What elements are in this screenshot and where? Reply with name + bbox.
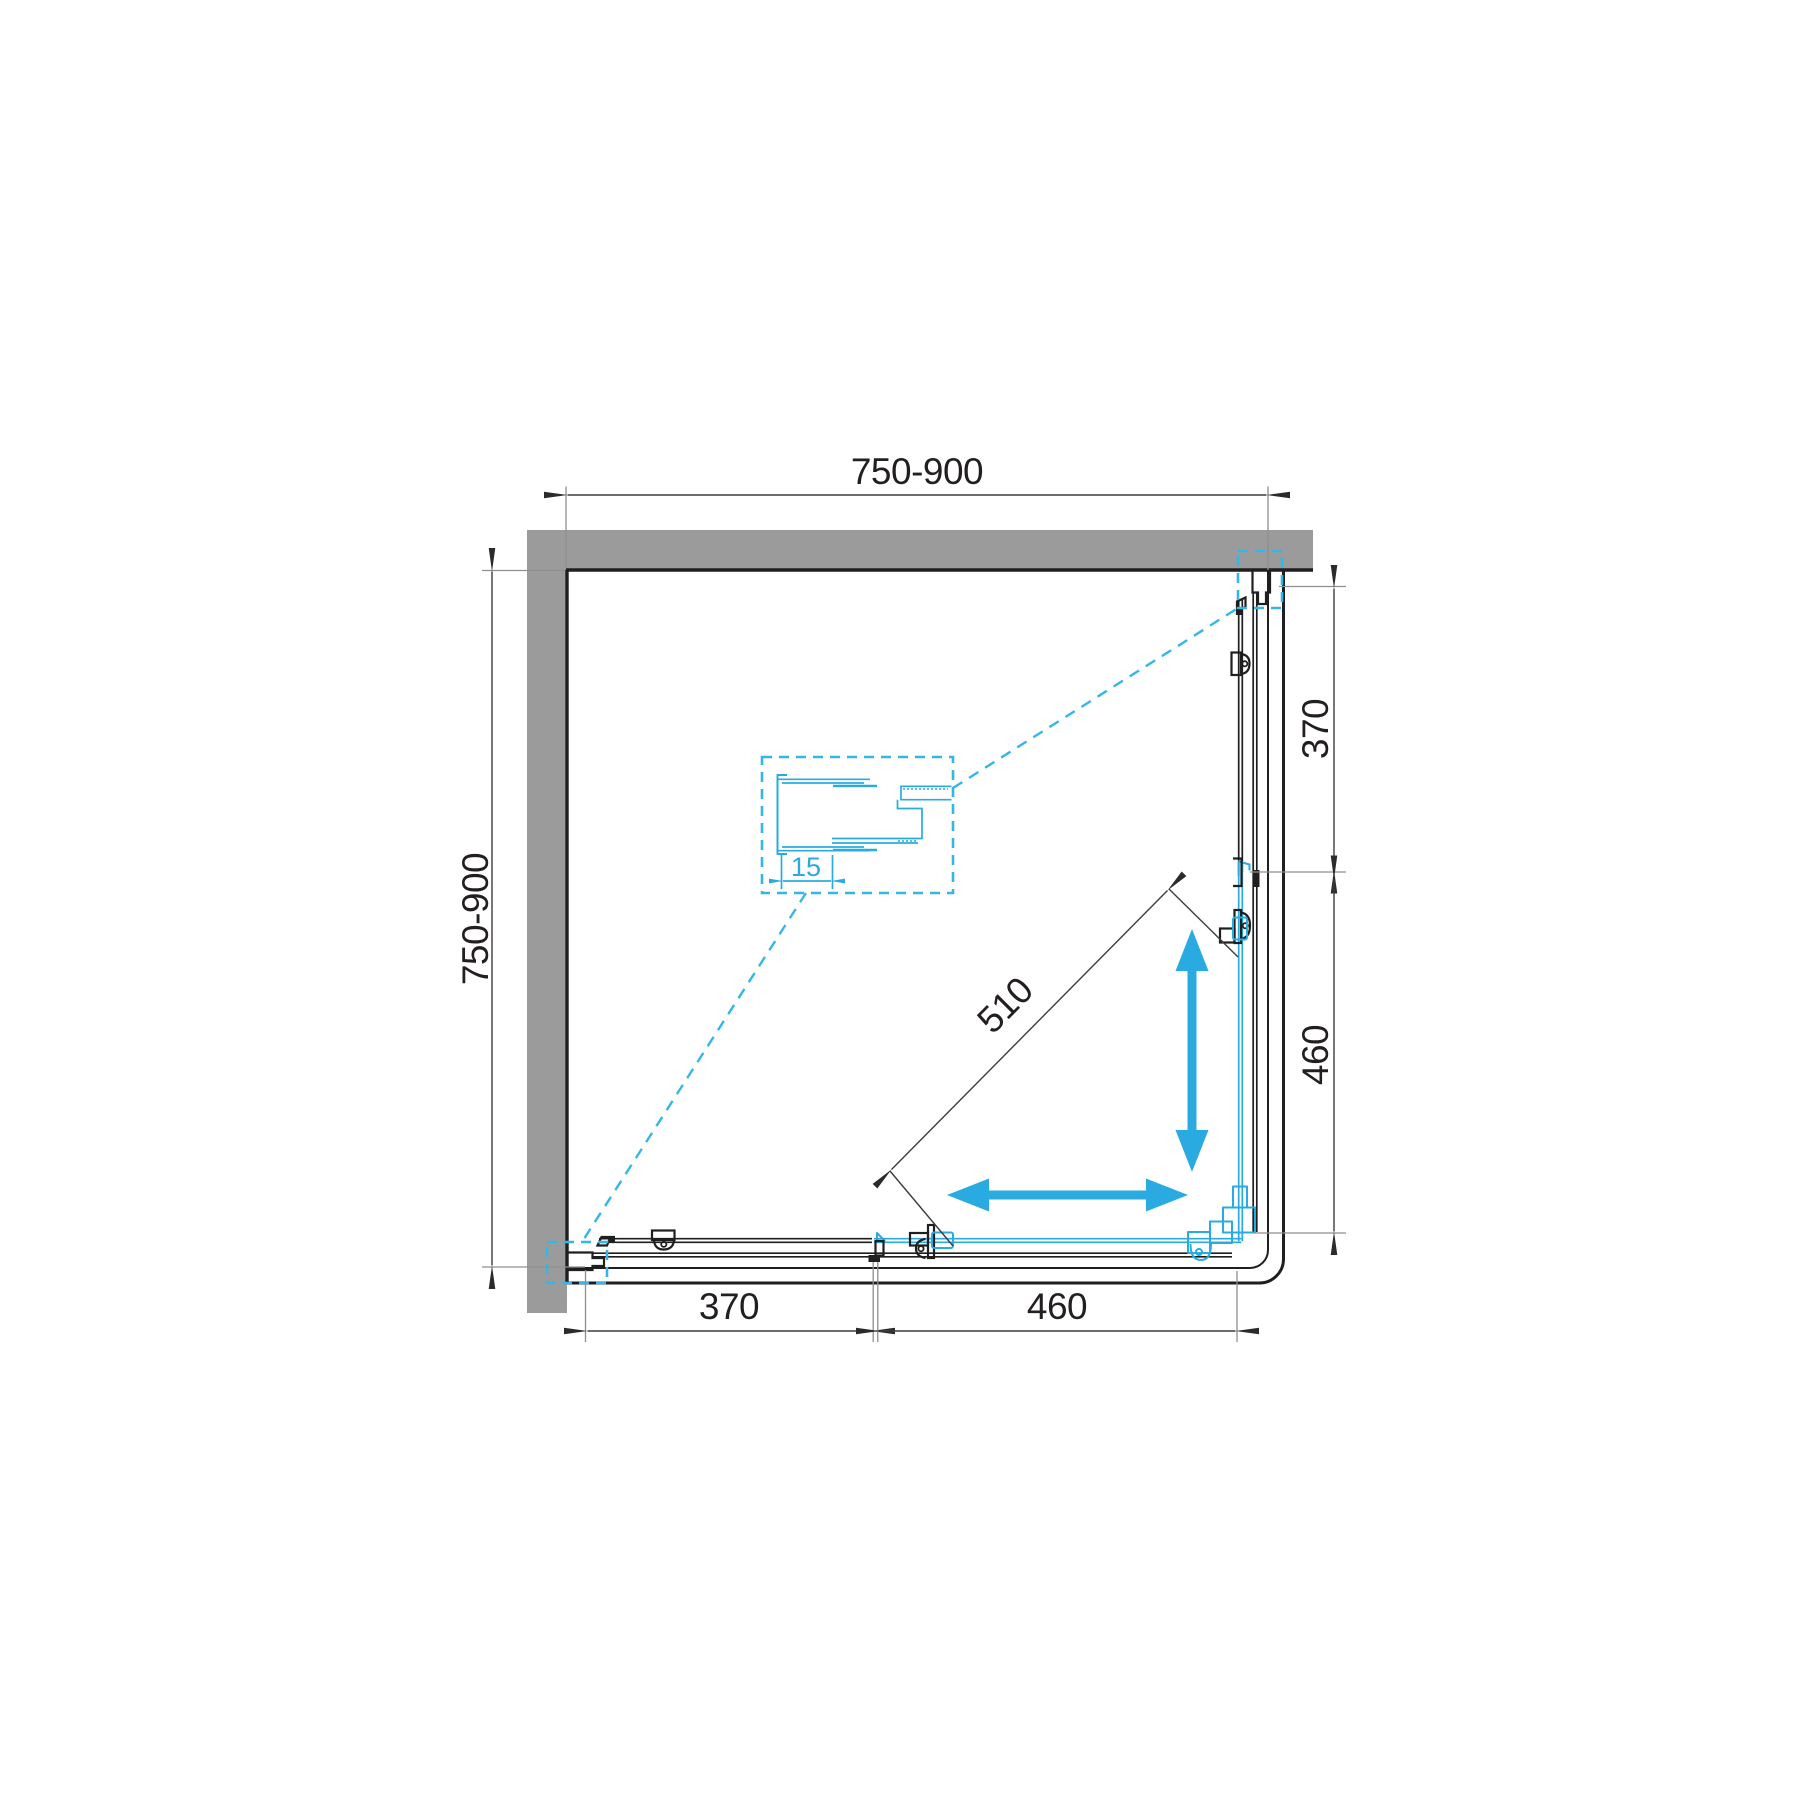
bottom-panel-roller	[652, 1231, 675, 1250]
detail-leader-bottom-left	[582, 893, 806, 1242]
dimension-bottom-370: 370	[586, 1262, 874, 1342]
corner-door-connector	[1188, 1187, 1255, 1261]
right-panel-roller	[1232, 653, 1250, 676]
dimension-right-370: 370	[1250, 587, 1346, 873]
profile-detail-callout: 15	[582, 608, 1238, 1242]
horizontal-slide-arrow	[947, 1179, 1188, 1212]
right-door-roller-bracket	[1220, 910, 1250, 943]
dimension-bottom-460: 460	[878, 1262, 1237, 1342]
dimension-right-460: 460	[1253, 879, 1346, 1233]
guide-rails	[592, 593, 1257, 1257]
dim-label-bottom-460: 460	[1027, 1286, 1087, 1327]
tray-inner-edge	[567, 570, 1268, 1268]
top-wall	[527, 530, 1313, 570]
technical-drawing-page: 15 750-900 750-900 370 460 370	[0, 0, 1800, 1800]
dim-label-left-depth: 750-900	[455, 853, 496, 985]
tray-outer-edge	[567, 570, 1284, 1283]
bottom-panel-junction-bracket	[869, 1241, 884, 1262]
dim-label-right-460: 460	[1295, 1025, 1336, 1085]
walls	[482, 530, 1313, 1313]
dim-label-top-width: 750-900	[851, 451, 983, 492]
dim-label-15: 15	[791, 852, 821, 882]
bottom-door-end-hook	[877, 1233, 885, 1241]
dim-label-bottom-370: 370	[699, 1286, 759, 1327]
detail-dimension-15: 15	[782, 852, 833, 889]
detail-leader-top-right	[953, 608, 1238, 788]
wall-profile-section	[778, 775, 952, 854]
shower-tray	[567, 570, 1284, 1283]
bottom-fixed-panel	[599, 1239, 872, 1243]
vertical-slide-arrow	[1176, 929, 1209, 1172]
shower-enclosure-plan-svg: 15 750-900 750-900 370 460 370	[0, 0, 1800, 1800]
right-fixed-panel	[1239, 599, 1243, 872]
right-door-top-hook	[1239, 862, 1250, 877]
slide-direction-arrows	[947, 929, 1209, 1212]
dim-label-right-370: 370	[1295, 699, 1336, 759]
left-wall	[527, 570, 567, 1313]
